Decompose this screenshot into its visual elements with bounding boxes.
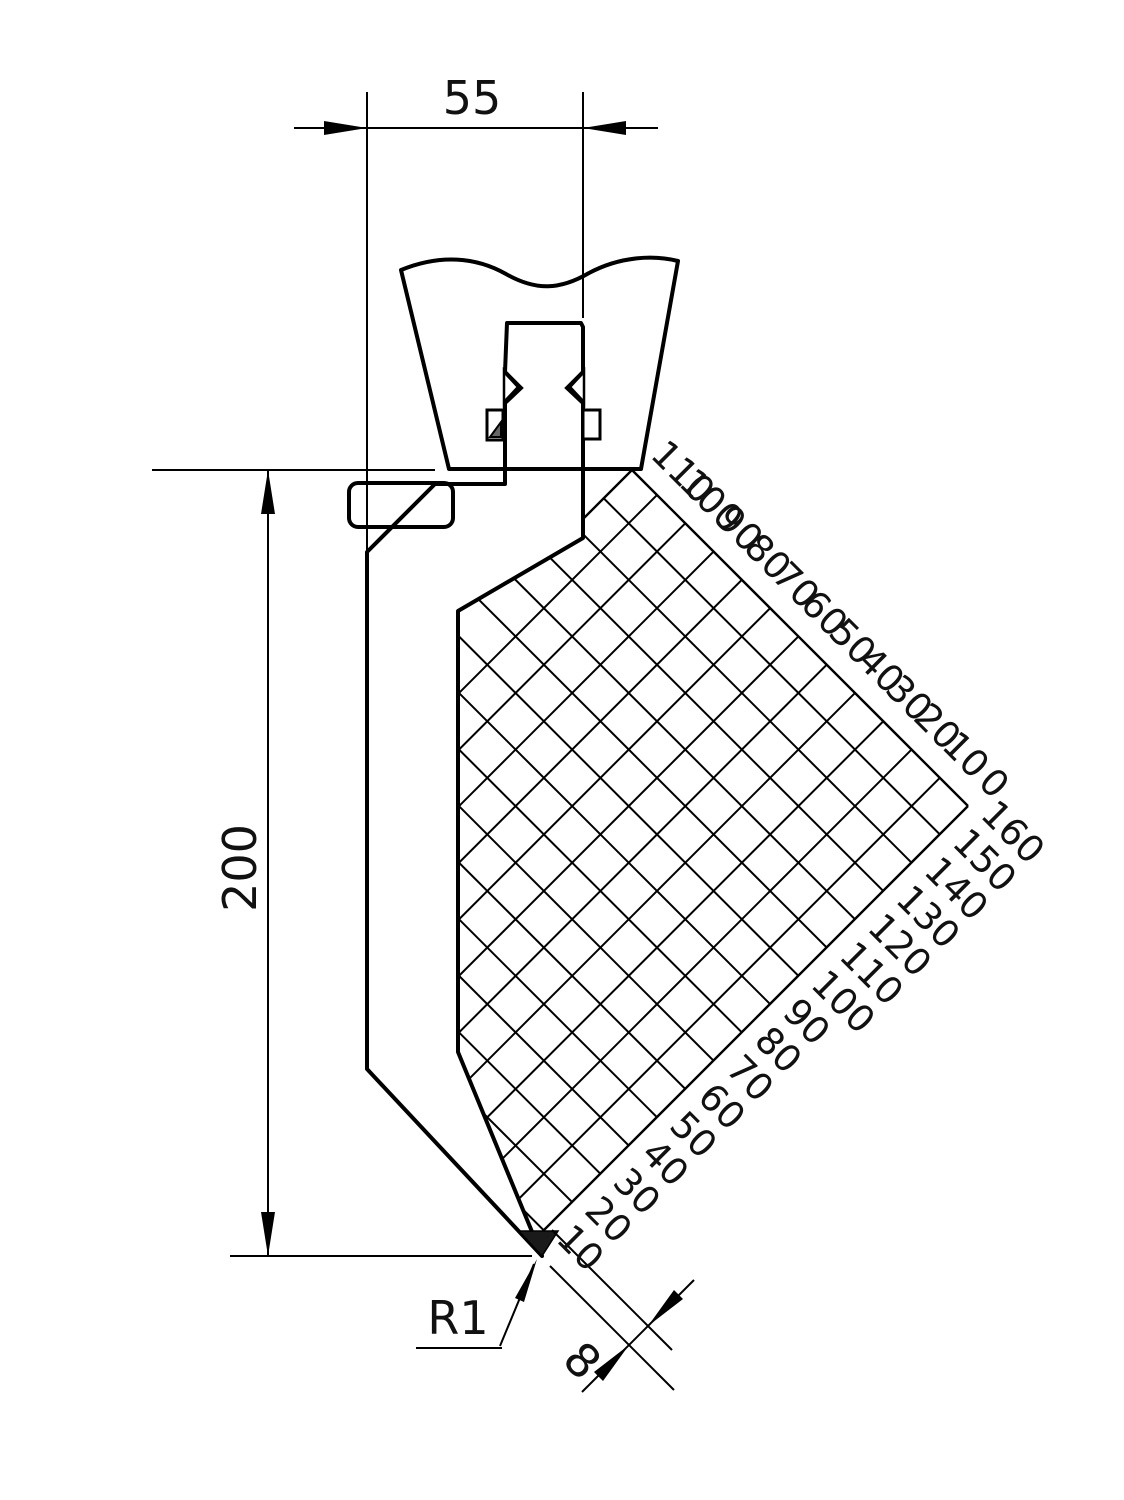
clamp-pin-windows [487,410,600,440]
tip-radius-value: R1 [427,1291,488,1345]
dimension-width-55: 55 [294,71,658,135]
width-value: 55 [443,71,502,125]
tool-holder-clamp [401,258,678,469]
height-value: 200 [213,824,267,912]
dimension-height-200: 200 [213,470,275,1256]
drawing-canvas: 55 200 R1 8 1101009080706050403020100 16… [0,0,1124,1500]
grid-top-scale: 1101009080706050403020100 [643,432,1018,807]
dimension-tip-radius: R1 [416,1259,537,1348]
tip-offset-value: 8 [553,1331,612,1390]
press-brake-punch-drawing: 55 200 R1 8 1101009080706050403020100 16… [0,0,1124,1500]
grid-border-lines [542,470,968,1232]
